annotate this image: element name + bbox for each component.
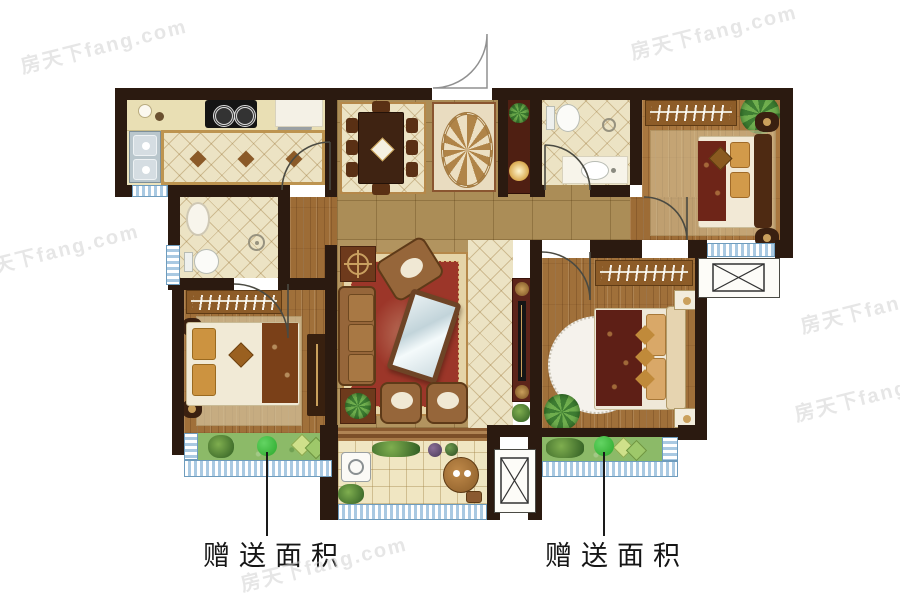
toilet-bowl	[556, 104, 580, 132]
faucet-icon	[611, 168, 616, 173]
window	[542, 461, 678, 477]
bed-blanket	[596, 310, 642, 406]
cup-icon	[464, 470, 471, 477]
burner-icon	[234, 105, 256, 127]
tile-accent	[238, 151, 255, 168]
planter-greens	[338, 484, 364, 504]
shower-dot	[255, 241, 259, 245]
wall	[590, 185, 630, 197]
medallion-sunburst	[441, 112, 493, 188]
sofa	[338, 286, 376, 386]
armchair	[426, 382, 468, 424]
tile-accent	[190, 151, 207, 168]
kitchen-tile-runner	[161, 130, 325, 185]
bonus-area-label-right: 赠送面积	[545, 534, 689, 573]
shrub-icon	[208, 435, 234, 458]
dining-chair	[406, 140, 418, 155]
plant-icon	[512, 404, 530, 422]
floor-drain-icon	[602, 118, 616, 132]
bathroom1-sink	[186, 202, 210, 236]
washing-machine-icon	[341, 452, 371, 482]
bathroom2-vanity	[562, 156, 628, 184]
balcony-sliding-door	[338, 428, 488, 441]
knob-icon	[763, 118, 771, 126]
entry-console	[506, 98, 532, 194]
window	[184, 460, 332, 477]
drain-icon	[142, 166, 150, 174]
living-tile-strip	[468, 240, 513, 428]
flower-pot-icon	[445, 443, 458, 456]
crossed-box-icon	[699, 259, 778, 296]
plant-icon	[544, 394, 580, 430]
balcony-table	[443, 457, 479, 493]
dining-table	[358, 112, 404, 184]
speaker-icon	[515, 385, 529, 399]
knob-icon	[683, 415, 691, 423]
toilet-tank	[184, 252, 193, 272]
wall	[115, 185, 132, 197]
wardrobe-master	[595, 260, 693, 286]
wardrobe-left	[186, 290, 282, 314]
sofa-cushion	[348, 354, 374, 382]
shower-head-icon	[248, 234, 265, 251]
side-table	[340, 388, 376, 424]
wall	[498, 88, 508, 197]
cup-icon	[453, 470, 460, 477]
chair-cushion	[397, 254, 427, 282]
hanger-icons	[601, 265, 688, 281]
sofa-cushion	[348, 324, 374, 352]
armchair	[380, 382, 422, 424]
tv-cabinet	[512, 278, 531, 402]
knob-icon	[188, 405, 196, 413]
wall	[678, 425, 707, 440]
watermark: 房天下fang.com	[797, 270, 900, 339]
hanger-icons	[650, 105, 731, 121]
watermark: 房天下fang.com	[791, 358, 900, 427]
ac-platform	[494, 449, 536, 513]
leader-line	[266, 452, 268, 536]
nightstand	[755, 112, 779, 132]
vanity-sink	[581, 161, 609, 180]
chair-cushion	[391, 392, 413, 409]
drain-icon	[142, 142, 150, 150]
tv-screen-line	[521, 305, 522, 377]
wall	[325, 245, 337, 430]
watermark: 房天下fang.com	[627, 0, 800, 65]
wall	[780, 88, 793, 258]
watermark: 房天下fang.com	[17, 10, 190, 79]
ac-platform	[698, 258, 780, 298]
kitchen-sink-unit	[129, 131, 161, 183]
wall	[688, 240, 707, 258]
wall	[530, 185, 545, 197]
console-lamp-icon	[509, 161, 529, 181]
side-table	[340, 246, 376, 282]
entry-medallion-rug	[432, 102, 496, 192]
window	[184, 433, 198, 460]
plant-icon	[345, 393, 371, 419]
window	[707, 243, 775, 257]
planter-greens	[372, 441, 420, 457]
dresser	[307, 334, 327, 416]
wall	[325, 88, 337, 197]
kitchen-pot	[155, 112, 164, 121]
wall	[530, 240, 542, 440]
wall	[630, 88, 642, 185]
bed-headboard	[754, 134, 772, 228]
window	[338, 504, 487, 520]
handle-icon	[316, 344, 318, 406]
balcony-stool	[466, 491, 482, 503]
dining-chair	[346, 140, 358, 155]
hanger-icons	[192, 295, 277, 310]
floor-plan-image: 赠送面积 赠送面积 房天下fang.com 房天下fang.com 房天下fan…	[0, 0, 900, 600]
window	[132, 185, 168, 197]
pillow	[192, 364, 216, 396]
wall	[590, 240, 642, 258]
pillow	[192, 328, 216, 360]
watermark: 房天下fang.com	[0, 215, 142, 284]
washer-drum	[348, 459, 364, 475]
wall	[172, 278, 184, 455]
console-plant-icon	[509, 103, 529, 123]
toilet-bowl	[194, 249, 219, 274]
dining-chair	[406, 162, 418, 177]
wall	[115, 88, 432, 100]
speaker-icon	[515, 282, 529, 296]
leader-line	[603, 452, 605, 536]
tv-icon	[518, 301, 526, 381]
wall	[115, 88, 127, 197]
pillow	[730, 142, 750, 168]
dining-chair	[346, 118, 358, 133]
bed-headboard	[666, 306, 686, 410]
pillow	[730, 172, 750, 198]
sink-basin	[133, 159, 157, 180]
flower-pot-icon	[428, 443, 442, 457]
bed-blanket	[262, 323, 298, 403]
sink-basin	[133, 135, 157, 156]
dining-chair	[346, 162, 358, 177]
knob-icon	[763, 234, 771, 242]
dining-chair	[406, 118, 418, 133]
tile-accent	[286, 151, 303, 168]
kitchen-prep-sink	[138, 104, 152, 118]
window	[166, 245, 180, 285]
table-centerpiece	[370, 137, 394, 161]
wall	[168, 185, 284, 197]
wall	[775, 240, 793, 258]
shrub-icon	[546, 438, 584, 458]
knob-icon	[683, 297, 691, 305]
kitchen-cabinet	[275, 97, 323, 127]
sofa-cushion	[348, 294, 374, 322]
entrance-door-icon	[433, 34, 487, 88]
chair-cushion	[437, 392, 459, 409]
burner-icon	[213, 105, 235, 127]
toilet-tank	[546, 106, 555, 130]
window	[662, 437, 678, 461]
wardrobe-top-right	[645, 100, 737, 126]
crossed-box-icon	[495, 450, 534, 511]
wall	[168, 185, 180, 245]
wall	[278, 185, 290, 290]
dining-chair	[372, 183, 390, 195]
compass-decor-icon	[341, 247, 375, 281]
wall	[530, 88, 542, 197]
stove	[205, 100, 257, 128]
